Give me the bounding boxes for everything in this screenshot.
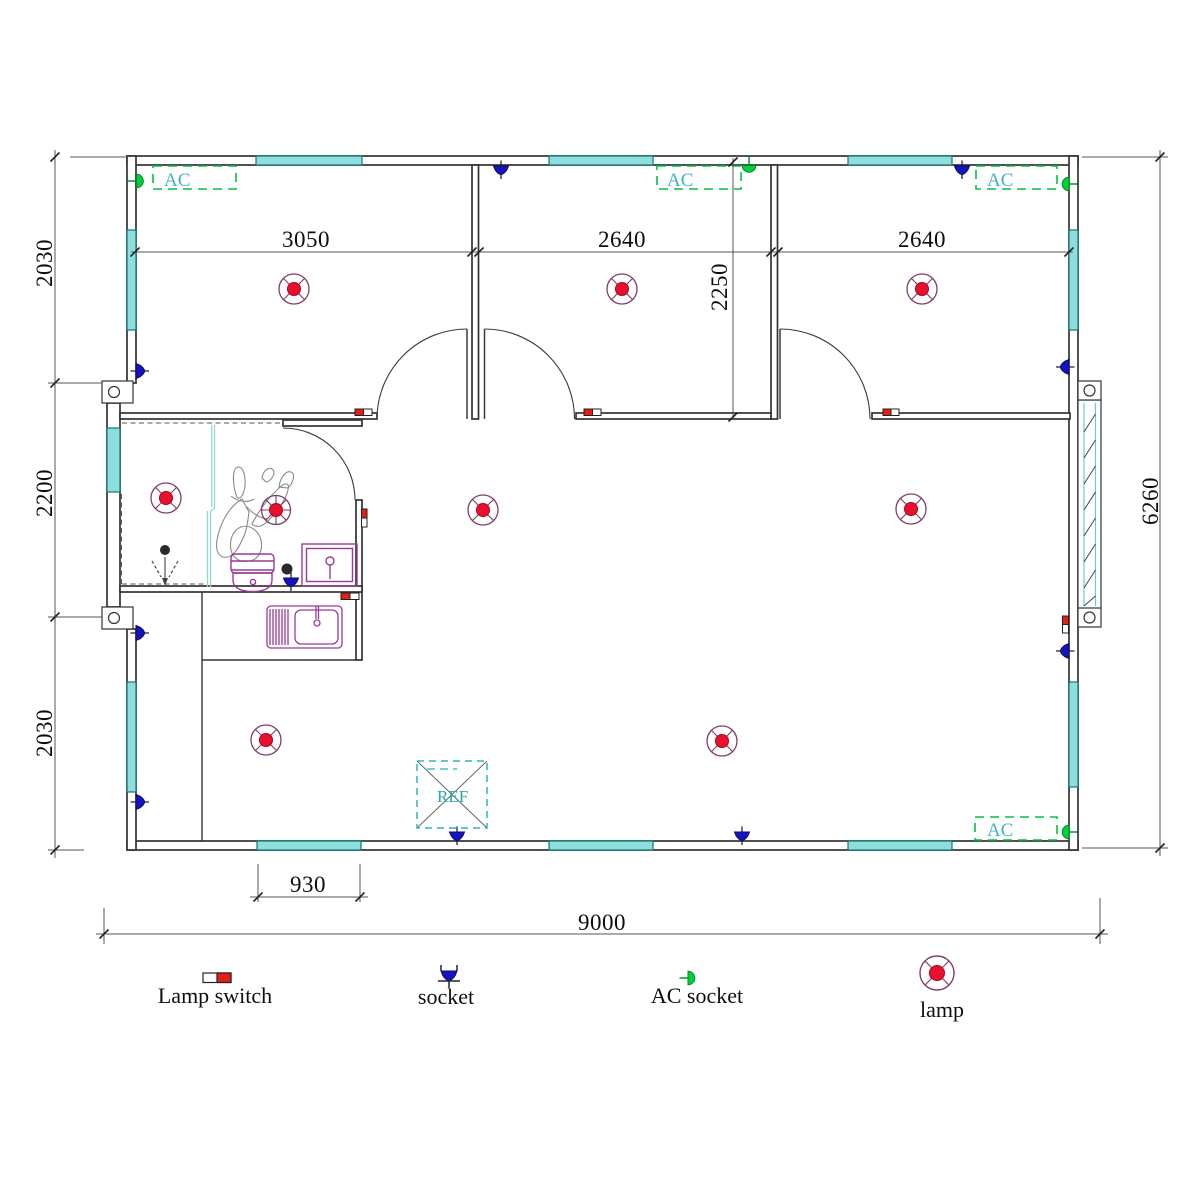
svg-text:2250: 2250 (707, 263, 732, 311)
svg-text:Lamp switch: Lamp switch (158, 983, 272, 1008)
svg-text:2200: 2200 (32, 469, 57, 517)
svg-text:2030: 2030 (32, 709, 57, 757)
svg-text:2030: 2030 (32, 239, 57, 287)
svg-text:REF: REF (437, 787, 468, 806)
svg-text:6260: 6260 (1138, 477, 1163, 525)
svg-text:socket: socket (418, 984, 474, 1009)
svg-text:AC socket: AC socket (651, 983, 743, 1008)
svg-text:930: 930 (290, 872, 326, 897)
svg-text:2640: 2640 (598, 227, 646, 252)
svg-text:AC: AC (987, 170, 1013, 191)
svg-text:AC: AC (987, 820, 1013, 841)
svg-text:9000: 9000 (578, 910, 626, 935)
svg-text:AC: AC (667, 170, 693, 191)
svg-text:2640: 2640 (898, 227, 946, 252)
svg-text:lamp: lamp (920, 997, 964, 1022)
svg-text:AC: AC (164, 170, 190, 191)
svg-text:3050: 3050 (282, 227, 330, 252)
